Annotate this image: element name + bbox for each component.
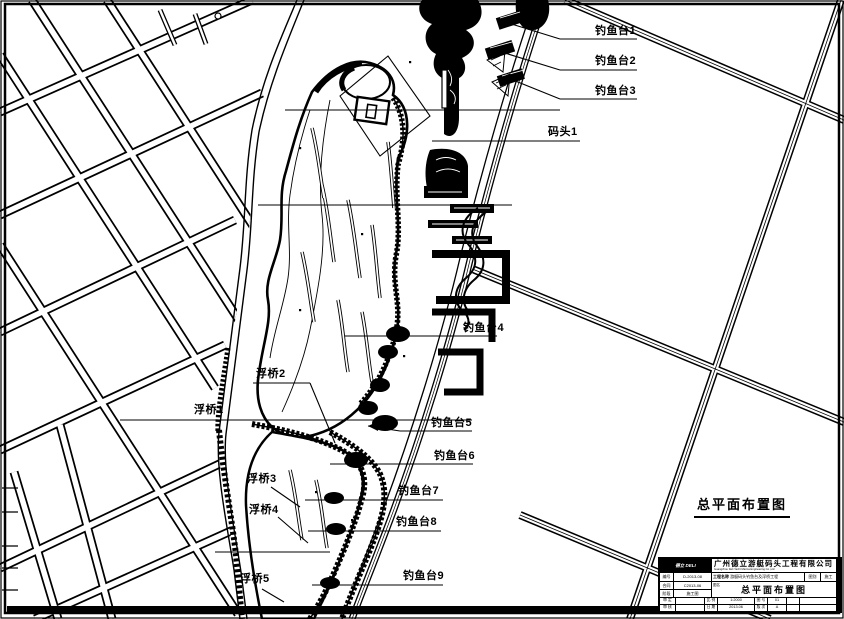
title-block-bottom: 审 定 比 例 1:2000 图 号 01 审 核 日 期 2013.06 版 … xyxy=(660,598,836,611)
label-dock-1: 码头1 xyxy=(548,127,578,138)
rev-value: A xyxy=(768,605,786,611)
stage-label: 阶段 xyxy=(660,590,673,597)
project-no-label: 编号 xyxy=(660,573,673,581)
scale-value: 1:2000 xyxy=(718,598,754,604)
label-fishing-platform-3: 钓鱼台3 xyxy=(595,86,636,97)
label-fishing-platform-1: 钓鱼台1 xyxy=(595,26,636,37)
label-fishing-platform-4: 钓鱼台4 xyxy=(463,323,504,334)
label-pontoon-bridge-4: 浮桥4 xyxy=(249,505,279,516)
drawing-class-value: 施工 xyxy=(821,573,836,581)
rev-label: 版 次 xyxy=(755,605,767,611)
company-name-cell: 广州德立游艇码头工程有限公司 Guangzhou Deli Yacht Mari… xyxy=(712,559,836,572)
project-name-value: 游艇码头钓鱼台及浮桥工程 xyxy=(730,575,778,579)
project-no-value: D-2013-08 xyxy=(674,573,711,581)
title-block-bottom-row-2: 审 核 日 期 2013.06 版 次 A xyxy=(660,605,836,611)
company-name-en: Guangzhou Deli Yacht Marina Engineering … xyxy=(714,568,824,571)
plan-title: 总平面布置图 xyxy=(694,494,790,518)
label-pontoon-bridge-3: 浮桥3 xyxy=(247,474,277,485)
label-fishing-platform-8: 钓鱼台8 xyxy=(396,517,437,528)
approved-value xyxy=(676,598,704,604)
label-fishing-platform-6: 钓鱼台6 xyxy=(434,451,475,462)
label-fishing-platform-2: 钓鱼台2 xyxy=(595,56,636,67)
label-pontoon-bridge-1: 浮桥1 xyxy=(194,405,224,416)
drawing-sheet: 钓鱼台1 钓鱼台2 钓鱼台3 码头1 钓鱼台4 钓鱼台5 钓鱼台6 钓鱼台7 钓… xyxy=(0,0,844,619)
label-fishing-platform-9: 钓鱼台9 xyxy=(403,571,444,582)
stage-value: 施工图 xyxy=(674,590,711,597)
sheet-no-value: 01 xyxy=(768,598,786,604)
date-value: 2013.06 xyxy=(718,605,754,611)
drawing-class-label: 图别 xyxy=(805,573,820,581)
spare-cell-4 xyxy=(800,605,836,611)
drawing-name-cell: 图名 总平面布置图 xyxy=(712,582,836,597)
checked-value xyxy=(676,605,704,611)
drawing-name: 总平面布置图 xyxy=(741,583,807,596)
scale-label: 比 例 xyxy=(705,598,717,604)
approved-label: 审 定 xyxy=(660,598,675,604)
title-block-bottom-row-1: 审 定 比 例 1:2000 图 号 01 xyxy=(660,598,836,604)
project-name-label: 工程名称 xyxy=(713,575,729,579)
spare-cell-2 xyxy=(800,598,836,604)
label-pontoon-bridge-2: 浮桥2 xyxy=(256,369,286,380)
spare-cell-3 xyxy=(787,605,799,611)
label-fishing-platform-5: 钓鱼台5 xyxy=(431,418,472,429)
company-logo: 德立 DELI xyxy=(660,559,711,572)
date-label: 日 期 xyxy=(705,605,717,611)
sheet-no-label: 图 号 xyxy=(755,598,767,604)
drawing-name-label: 图名 xyxy=(713,583,720,588)
title-block: 德立 DELI 广州德立游艇码头工程有限公司 Guangzhou Deli Ya… xyxy=(658,557,842,613)
spare-cell-1 xyxy=(787,598,799,604)
contract-value: C2013-06 xyxy=(674,582,711,589)
label-pontoon-bridge-5: 浮桥5 xyxy=(240,574,270,585)
right-road-network xyxy=(470,0,844,619)
project-name-cell: 工程名称 游艇码头钓鱼台及浮桥工程 xyxy=(712,573,804,581)
contract-label: 合同 xyxy=(660,582,673,589)
left-street-network xyxy=(0,0,262,619)
label-fishing-platform-7: 钓鱼台7 xyxy=(398,486,439,497)
checked-label: 审 核 xyxy=(660,605,675,611)
